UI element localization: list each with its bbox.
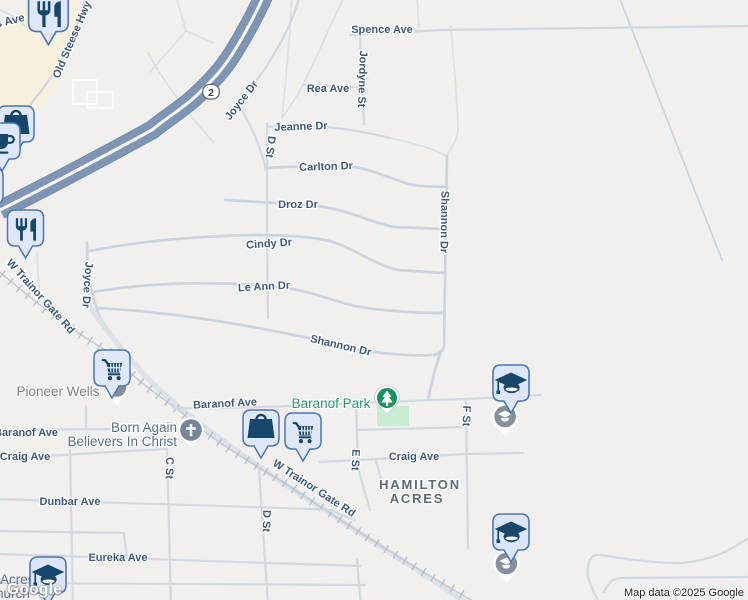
svg-text:ACRES: ACRES [390, 491, 445, 506]
svg-text:Carlton Dr: Carlton Dr [299, 160, 354, 174]
svg-text:Map data ©2025 Google: Map data ©2025 Google [624, 587, 744, 599]
svg-text:F St: F St [460, 405, 473, 427]
svg-text:Eureka Ave: Eureka Ave [88, 552, 147, 564]
svg-text:Craig Ave: Craig Ave [0, 451, 50, 463]
svg-text:C St: C St [163, 457, 176, 480]
svg-text:Craig Ave: Craig Ave [389, 451, 440, 463]
svg-text:Google: Google [7, 581, 62, 598]
svg-text:2: 2 [208, 87, 214, 99]
svg-text:Baranof Ave: Baranof Ave [0, 427, 58, 439]
svg-text:Droz Dr: Droz Dr [278, 199, 318, 211]
svg-text:Jordyne St: Jordyne St [355, 50, 369, 108]
svg-text:Spence Ave: Spence Ave [351, 24, 413, 36]
svg-text:Dunbar Ave: Dunbar Ave [40, 496, 101, 508]
svg-text:Believers In Christ: Believers In Christ [67, 434, 177, 449]
svg-text:Born Again: Born Again [111, 420, 177, 435]
svg-text:E St: E St [349, 449, 362, 471]
svg-text:Jeanne Dr: Jeanne Dr [274, 120, 328, 134]
svg-text:HAMILTON: HAMILTON [379, 477, 461, 492]
svg-text:Pioneer Wells: Pioneer Wells [16, 384, 99, 399]
svg-text:D St: D St [260, 510, 273, 533]
svg-text:Rea Ave: Rea Ave [307, 83, 350, 95]
svg-text:Baranof Park: Baranof Park [292, 396, 371, 411]
svg-text:Shannon Dr: Shannon Dr [437, 191, 450, 254]
